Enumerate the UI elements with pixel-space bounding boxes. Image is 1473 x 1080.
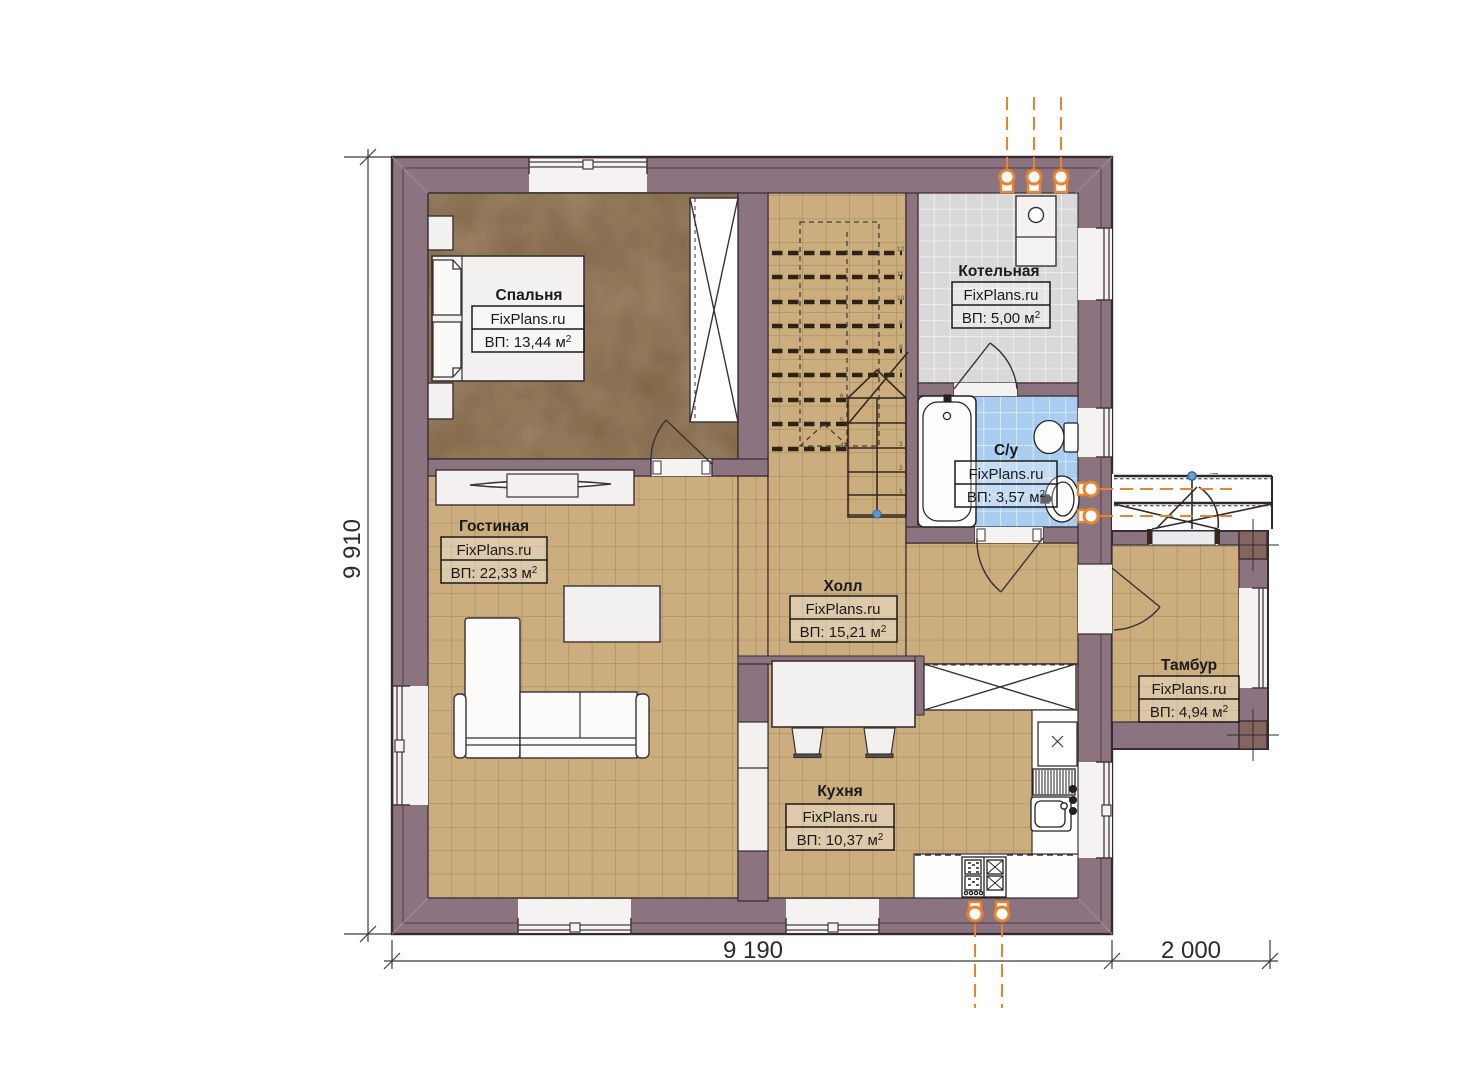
svg-text:9: 9: [899, 320, 903, 327]
svg-text:10: 10: [897, 295, 905, 302]
svg-text:FixPlans.ru: FixPlans.ru: [490, 311, 565, 328]
svg-text:ВП: 22,33 м2: ВП: 22,33 м2: [451, 565, 538, 582]
svg-text:FixPlans.ru: FixPlans.ru: [456, 542, 531, 559]
svg-text:4: 4: [840, 442, 844, 449]
svg-text:8: 8: [899, 344, 903, 351]
svg-text:11: 11: [897, 271, 904, 278]
svg-text:Холл: Холл: [824, 578, 863, 595]
svg-text:FixPlans.ru: FixPlans.ru: [802, 809, 877, 826]
svg-text:12: 12: [897, 246, 905, 253]
svg-text:Котельная: Котельная: [958, 263, 1039, 280]
svg-text:ВП: 10,37 м2: ВП: 10,37 м2: [797, 832, 884, 849]
svg-text:FixPlans.ru: FixPlans.ru: [963, 287, 1038, 304]
svg-text:3: 3: [899, 441, 903, 448]
svg-text:1: 1: [899, 488, 903, 495]
svg-text:FixPlans.ru: FixPlans.ru: [1151, 681, 1226, 698]
svg-text:Кухня: Кухня: [817, 783, 862, 800]
svg-text:5: 5: [840, 417, 844, 424]
svg-text:ВП: 4,94 м2: ВП: 4,94 м2: [1150, 704, 1229, 721]
svg-text:ВП: 3,57 м2: ВП: 3,57 м2: [967, 489, 1046, 506]
svg-text:ВП: 5,00 м2: ВП: 5,00 м2: [962, 310, 1041, 327]
svg-text:9 910: 9 910: [339, 519, 366, 579]
svg-text:2: 2: [899, 465, 903, 472]
svg-text:FixPlans.ru: FixPlans.ru: [968, 466, 1043, 483]
svg-text:Гостиная: Гостиная: [459, 518, 529, 535]
svg-text:ВП: 13,44 м2: ВП: 13,44 м2: [485, 334, 572, 351]
svg-text:Спальня: Спальня: [496, 287, 563, 304]
svg-text:С/у: С/у: [994, 442, 1019, 459]
svg-text:6: 6: [840, 393, 844, 400]
svg-text:FixPlans.ru: FixPlans.ru: [805, 601, 880, 618]
svg-text:9 190: 9 190: [723, 937, 783, 964]
svg-text:Тамбур: Тамбур: [1161, 657, 1217, 674]
svg-text:2 000: 2 000: [1161, 937, 1221, 964]
svg-text:7: 7: [899, 369, 903, 376]
svg-text:ВП: 15,21 м2: ВП: 15,21 м2: [800, 624, 887, 641]
